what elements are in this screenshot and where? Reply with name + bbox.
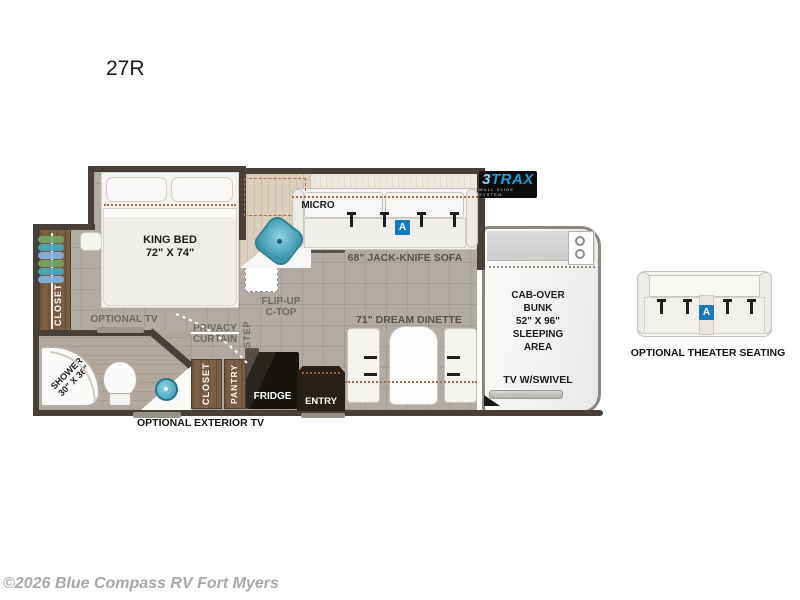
- floorplan-page: 27R CLOSET KING BED 72" X 74" OPTIONAL T…: [0, 0, 800, 600]
- theater-seatbelt-icon: [660, 300, 663, 314]
- optional-exterior-tv-label: OPTIONAL EXTERIOR TV: [118, 417, 283, 429]
- logo-number: 3: [482, 171, 491, 188]
- dinette-seatbelt-icon: [364, 373, 377, 376]
- dinette-table: [389, 326, 438, 405]
- entry-exterior-step: [301, 413, 345, 418]
- logo-tagline: WALL SLIDE SYSTEM: [479, 187, 537, 197]
- wall-top-left: [33, 224, 95, 230]
- tv-swivel-label: TV W/SWIVEL: [488, 374, 588, 386]
- step-label: STEP: [241, 316, 254, 352]
- sofa-seat-badge: A: [395, 220, 410, 235]
- theater-seatbelt-icon: [726, 300, 729, 314]
- cab-over-bunk-label: CAB-OVER BUNK 52" X 96" SLEEPING AREA: [488, 289, 588, 354]
- dinette-label: 71" DREAM DINETTE: [350, 314, 468, 326]
- bed-pillow: [171, 177, 233, 202]
- theater-backrest: [644, 275, 765, 297]
- fridge: FRIDGE: [246, 352, 299, 409]
- entry-dashed-line: [302, 372, 340, 374]
- bed-slide-dashed-line: [104, 204, 236, 206]
- microwave-label: MICRO: [296, 200, 340, 212]
- pantry-label: PANTRY: [228, 361, 241, 407]
- theater-seatbelt-icon: [686, 300, 689, 314]
- seatbelt-icon: [453, 213, 456, 227]
- fridge-label: FRIDGE: [246, 391, 299, 403]
- dinette-seatbelt-icon: [364, 356, 377, 359]
- toilet-tank: [109, 393, 131, 406]
- cab-gauge-icon: [575, 236, 585, 246]
- wall-top-middle: [239, 168, 485, 174]
- dinette-bench: [444, 328, 477, 403]
- theater-seatbelt-icon: [750, 300, 753, 314]
- dinette-slide-dashed-line: [345, 381, 477, 383]
- sink-drain-dot: [164, 387, 168, 391]
- bedroom-tv-icon: [97, 327, 144, 333]
- hanger-icon: [38, 252, 64, 259]
- flip-up-countertop: [245, 267, 278, 292]
- shower-label: SHOWER 30" X 36": [49, 355, 92, 398]
- hanger-icon: [38, 260, 64, 267]
- logo-word: TRAX: [491, 171, 534, 188]
- nightstand: [80, 232, 102, 251]
- sofa-slide-dashed-line: [292, 196, 478, 198]
- model-number-label: 27R: [106, 57, 145, 81]
- 3trax-logo: 3TRAX WALL SLIDE SYSTEM: [479, 171, 537, 198]
- hanger-icon: [38, 236, 64, 243]
- optional-tv-label: OPTIONAL TV: [85, 314, 163, 326]
- dinette-seatbelt-icon: [447, 356, 460, 359]
- bedroom-closet-label: CLOSET: [52, 278, 66, 332]
- wall-bed-slide-top: [88, 166, 246, 172]
- dinette-seatbelt-icon: [447, 373, 460, 376]
- bed-pillow: [106, 177, 167, 202]
- cab-gauge-icon: [575, 249, 585, 259]
- flip-up-ctop-label: FLIP-UP C-TOP: [255, 296, 307, 318]
- entry-door: ENTRY: [297, 366, 345, 411]
- optional-theater-seating-label: OPTIONAL THEATER SEATING: [620, 347, 796, 359]
- kitchen-sink-drain: [277, 239, 282, 244]
- sofa-label: 68" JACK-KNIFE SOFA: [330, 252, 480, 264]
- king-bed-label: KING BED 72" X 74": [109, 234, 231, 260]
- cab-bunk-dashed-line: [489, 266, 595, 268]
- hall-closet-label: CLOSET: [200, 361, 213, 407]
- wall-bed-slide-left: [88, 166, 94, 230]
- privacy-curtain-label: PRIVACY CURTAIN: [186, 323, 244, 345]
- seatbelt-icon: [420, 213, 423, 227]
- hanger-icon: [38, 244, 64, 251]
- seatbelt-icon: [383, 213, 386, 227]
- hanger-icon: [38, 268, 64, 275]
- dinette-bench: [347, 328, 380, 403]
- seatbelt-icon: [350, 213, 353, 227]
- swivel-tv-icon: [489, 390, 563, 399]
- entry-label: ENTRY: [297, 396, 345, 408]
- theater-seat-badge: A: [699, 305, 714, 320]
- copyright-watermark: ©2026 Blue Compass RV Fort Myers: [3, 575, 279, 593]
